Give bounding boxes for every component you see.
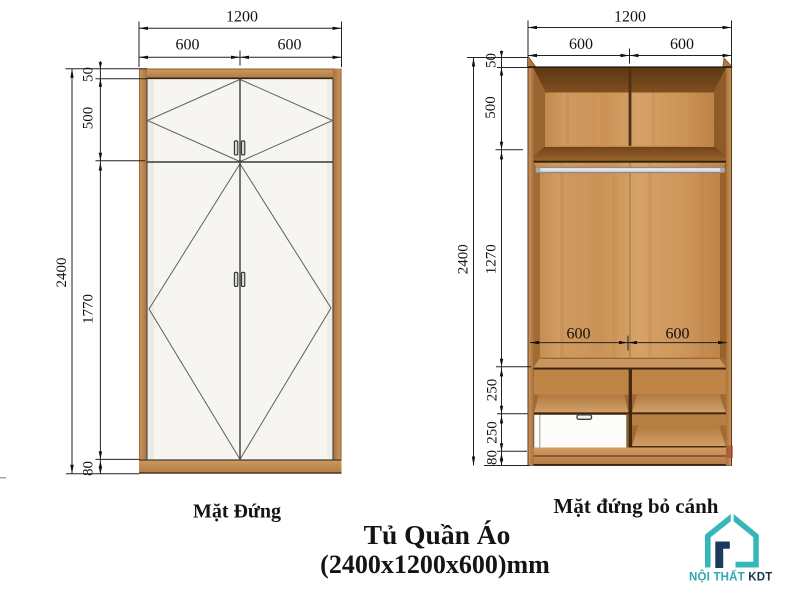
svg-text:600: 600 [567, 326, 591, 343]
svg-text:500: 500 [81, 107, 97, 130]
svg-text:600: 600 [278, 37, 302, 54]
svg-text:2400: 2400 [54, 258, 70, 288]
svg-text:Tủ Quần Áo: Tủ Quần Áo [364, 519, 511, 550]
svg-text:600: 600 [670, 36, 694, 53]
svg-text:250: 250 [485, 379, 501, 402]
svg-text:600: 600 [666, 326, 690, 343]
svg-text:1270: 1270 [484, 244, 500, 274]
svg-text:1200: 1200 [226, 9, 258, 26]
svg-text:1200: 1200 [614, 9, 646, 26]
svg-text:600: 600 [569, 36, 593, 53]
svg-text:80: 80 [485, 450, 501, 465]
svg-text:500: 500 [483, 96, 499, 119]
svg-text:Mặt đứng bỏ cánh: Mặt đứng bỏ cánh [554, 494, 719, 518]
svg-text:(2400x1200x600)mm: (2400x1200x600)mm [320, 550, 550, 579]
svg-text:50: 50 [81, 67, 97, 82]
svg-text:50: 50 [484, 53, 500, 68]
svg-text:Mặt Đứng: Mặt Đứng [193, 501, 281, 523]
svg-text:250: 250 [485, 421, 501, 444]
svg-text:1770: 1770 [81, 294, 97, 324]
svg-text:2400: 2400 [456, 244, 472, 274]
svg-text:80: 80 [81, 461, 97, 476]
svg-text:NỘI THẤT KDT: NỘI THẤT KDT [689, 571, 773, 584]
svg-text:600: 600 [176, 37, 200, 54]
